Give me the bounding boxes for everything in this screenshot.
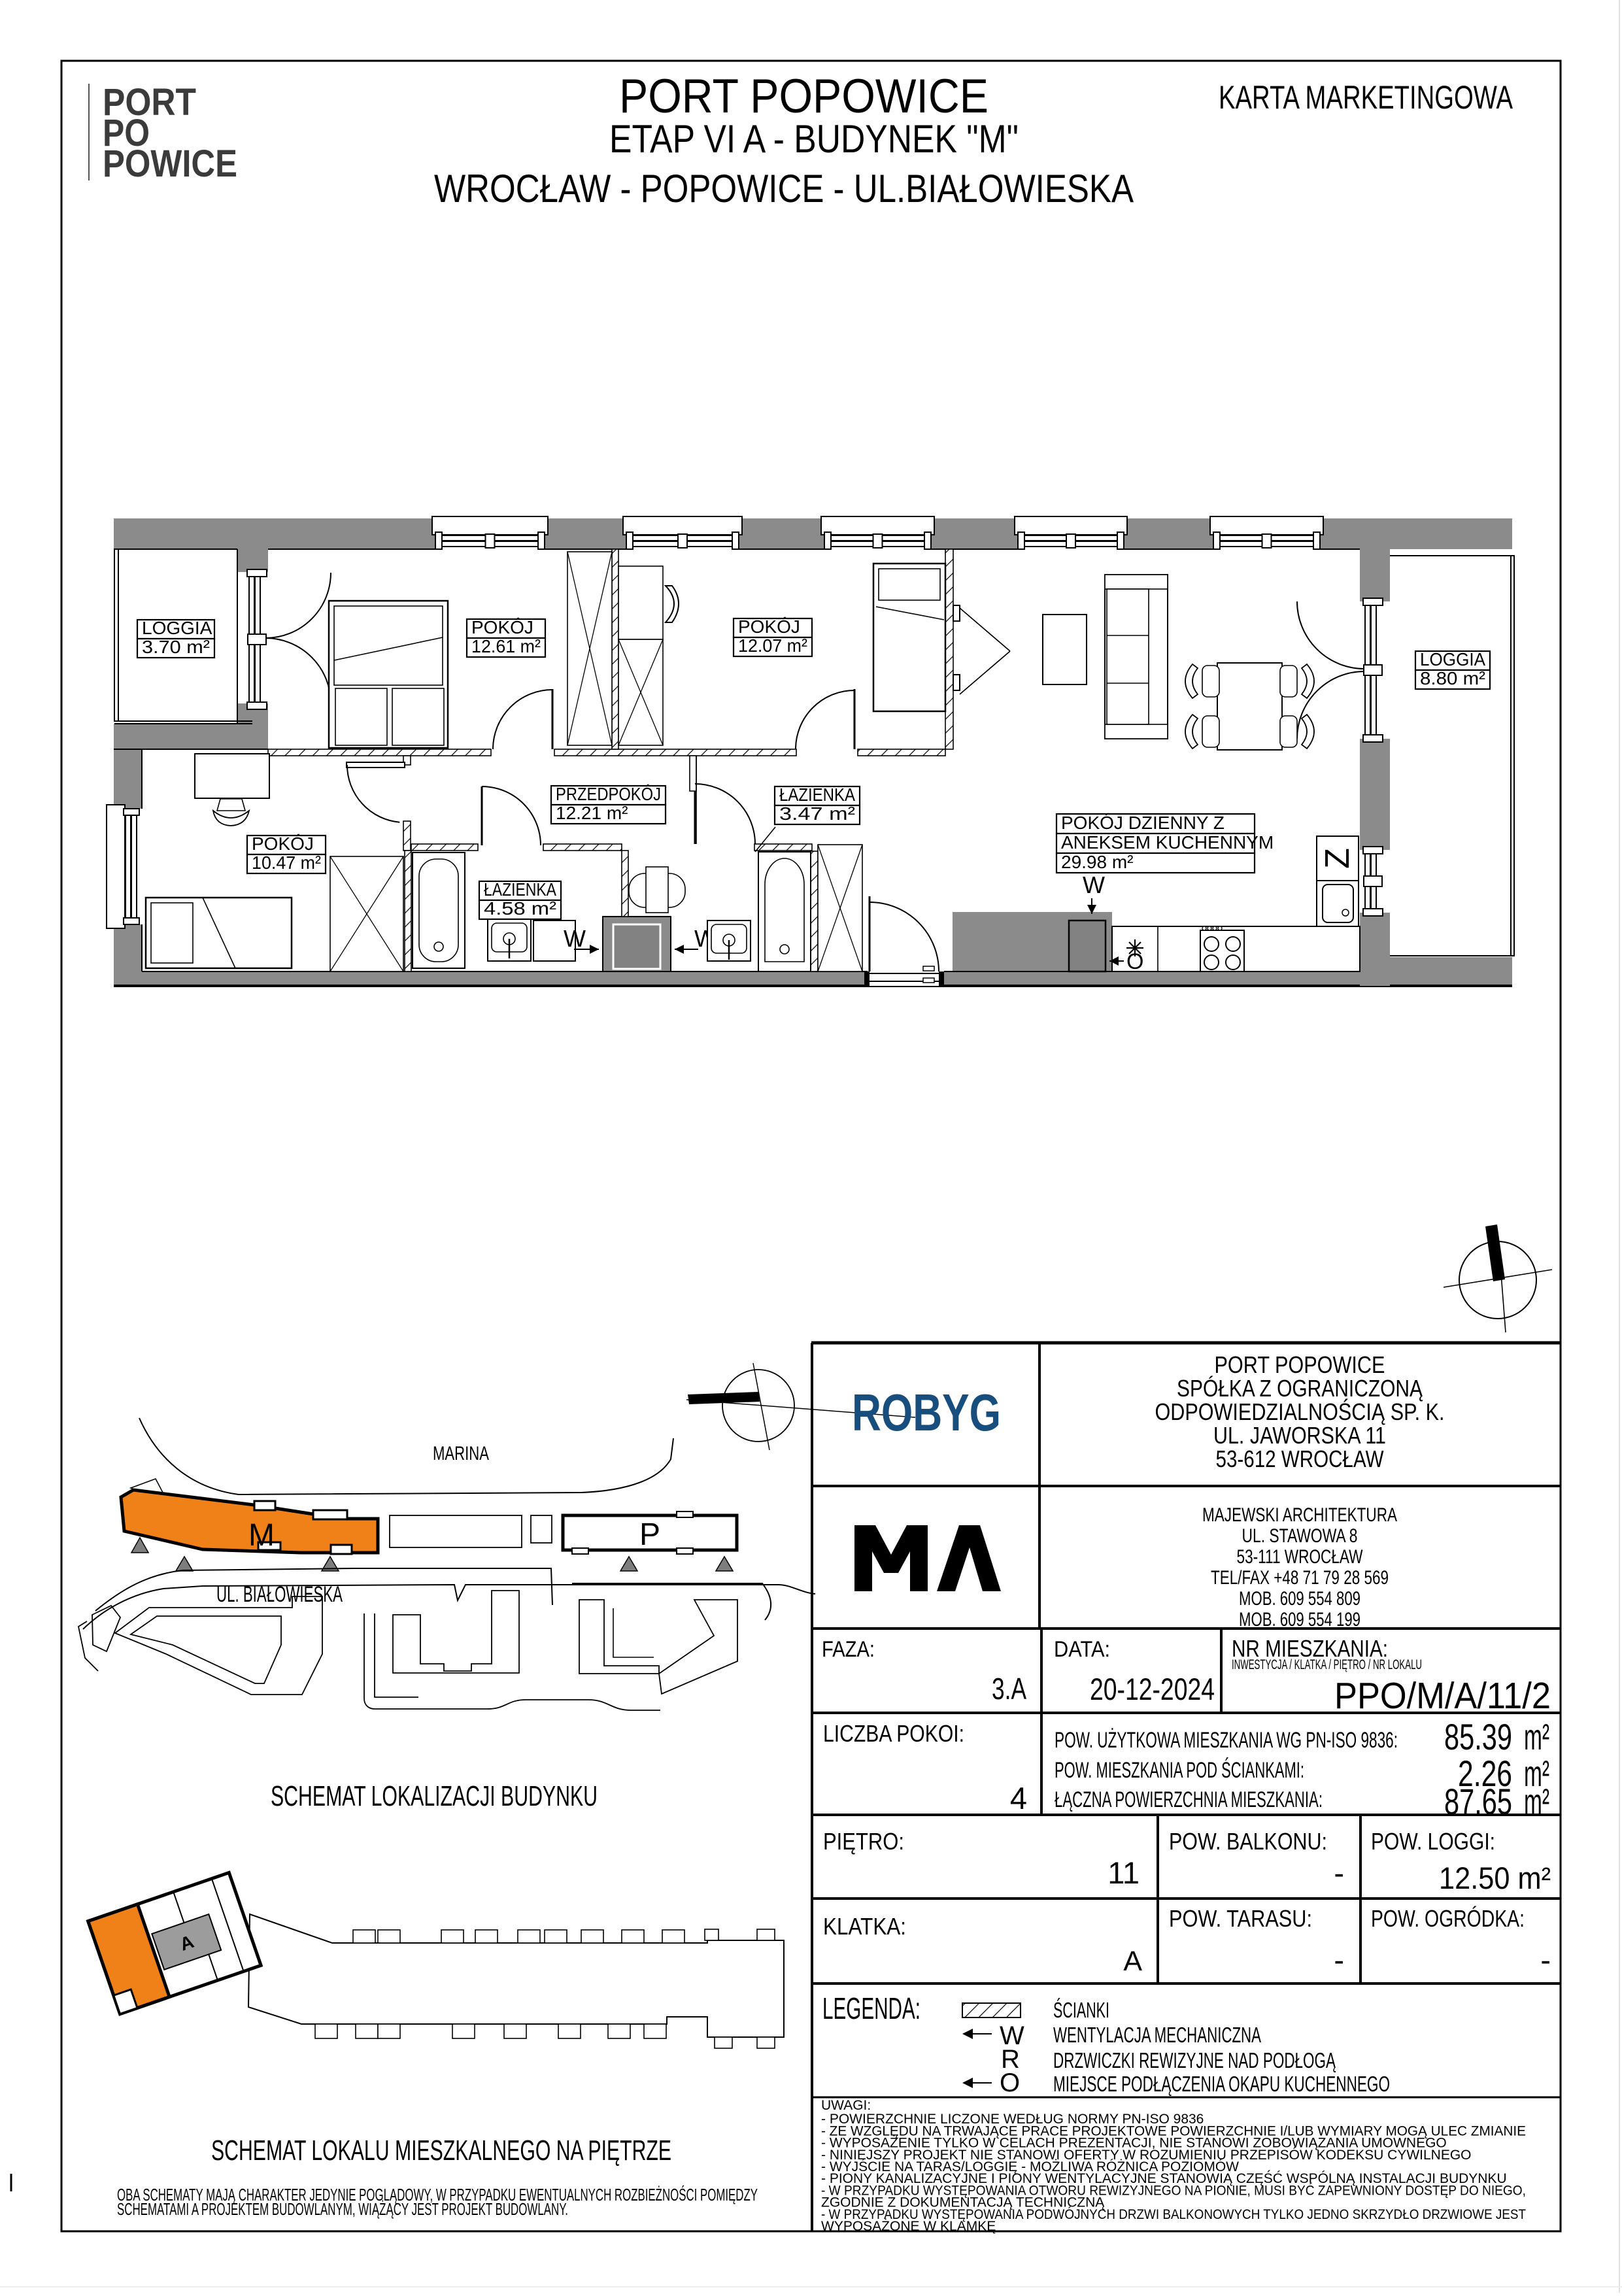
svg-text:ETAP VI A - BUDYNEK "M": ETAP VI A - BUDYNEK "M" xyxy=(609,117,1019,161)
svg-text:LICZBA POKOI:: LICZBA POKOI: xyxy=(823,1720,964,1747)
svg-text:MAJEWSKI ARCHITEKTURA: MAJEWSKI ARCHITEKTURA xyxy=(1202,1504,1397,1526)
svg-text:4: 4 xyxy=(1010,1781,1027,1815)
svg-text:POW. TARASU:: POW. TARASU: xyxy=(1169,1905,1312,1932)
svg-text:DATA:: DATA: xyxy=(1054,1637,1110,1662)
svg-text:12.50 m²: 12.50 m² xyxy=(1439,1861,1551,1895)
svg-text:PPO/M/A/11/2: PPO/M/A/11/2 xyxy=(1334,1675,1551,1717)
svg-text:20-12-2024: 20-12-2024 xyxy=(1090,1672,1215,1706)
svg-text:POKÓJ DZIENNY Z: POKÓJ DZIENNY Z xyxy=(1061,813,1225,833)
svg-text:LOGGIA: LOGGIA xyxy=(1420,649,1485,669)
svg-text:ŁAZIENKA: ŁAZIENKA xyxy=(779,785,855,805)
svg-text:POW. BALKONU:: POW. BALKONU: xyxy=(1169,1828,1327,1855)
svg-text:O: O xyxy=(1000,2068,1020,2097)
svg-text:PIĘTRO:: PIĘTRO: xyxy=(823,1828,904,1855)
svg-text:WROCŁAW - POPOWICE - UL.BIAŁOW: WROCŁAW - POPOWICE - UL.BIAŁOWIESKA xyxy=(434,167,1134,211)
svg-text:m²: m² xyxy=(1524,1781,1549,1822)
svg-text:-: - xyxy=(1334,1855,1344,1890)
svg-text:ANEKSEM KUCHENNYM: ANEKSEM KUCHENNYM xyxy=(1061,832,1274,853)
svg-text:UL. BIAŁOWIESKA: UL. BIAŁOWIESKA xyxy=(216,1582,343,1607)
svg-text:SPÓŁKA Z OGRANICZONĄ: SPÓŁKA Z OGRANICZONĄ xyxy=(1177,1375,1423,1402)
svg-text:3.70 m²: 3.70 m² xyxy=(142,637,210,657)
svg-text:3.A: 3.A xyxy=(992,1672,1026,1706)
svg-text:UL. STAWOWA 8: UL. STAWOWA 8 xyxy=(1242,1525,1358,1547)
svg-text:POW. LOGGI:: POW. LOGGI: xyxy=(1371,1828,1495,1855)
svg-text:29.98 m²: 29.98 m² xyxy=(1061,852,1134,872)
svg-text:SCHEMAT LOKALU MIESZKALNEGO NA: SCHEMAT LOKALU MIESZKALNEGO NA PIĘTRZE xyxy=(211,2135,671,2167)
svg-text:11: 11 xyxy=(1107,1855,1140,1890)
svg-text:UL. JAWORSKA 11: UL. JAWORSKA 11 xyxy=(1213,1422,1386,1449)
svg-text:WENTYLACJA MECHANICZNA: WENTYLACJA MECHANICZNA xyxy=(1053,2023,1261,2047)
svg-text:UWAGI:: UWAGI: xyxy=(821,2098,871,2113)
svg-text:-: - xyxy=(1540,1942,1551,1977)
svg-text:ROBYG: ROBYG xyxy=(852,1383,1001,1442)
svg-text:M: M xyxy=(248,1518,275,1553)
svg-text:POKÓJ: POKÓJ xyxy=(738,616,800,637)
svg-text:WYPOSAŻONE W KLAMKĘ: WYPOSAŻONE W KLAMKĘ xyxy=(821,2219,996,2234)
svg-text:12.21 m²: 12.21 m² xyxy=(556,803,628,823)
svg-text:53-612 WROCŁAW: 53-612 WROCŁAW xyxy=(1216,1445,1384,1472)
svg-text:10.47 m²: 10.47 m² xyxy=(252,853,321,873)
svg-text:PRZEDPOKÓJ: PRZEDPOKÓJ xyxy=(556,784,661,804)
svg-text:TEL/FAX +48 71 79 28 569: TEL/FAX +48 71 79 28 569 xyxy=(1211,1567,1389,1589)
svg-text:3.47 m²: 3.47 m² xyxy=(779,803,855,824)
svg-text:P: P xyxy=(639,1517,660,1552)
svg-text:DRZWICZKI REWIZYJNE NAD PODŁOG: DRZWICZKI REWIZYJNE NAD PODŁOGĄ xyxy=(1053,2048,1336,2072)
svg-text:MOB. 609 554 809: MOB. 609 554 809 xyxy=(1239,1588,1360,1610)
svg-text:4.58 m²: 4.58 m² xyxy=(484,898,556,919)
svg-text:85.39: 85.39 xyxy=(1444,1716,1512,1757)
svg-text:POKÓJ: POKÓJ xyxy=(252,834,314,854)
svg-text:MARINA: MARINA xyxy=(433,1443,489,1464)
svg-text:ŁĄCZNA POWIERZCHNIA MIESZKANIA: ŁĄCZNA POWIERZCHNIA MIESZKANIA: xyxy=(1055,1787,1323,1812)
svg-text:LEGENDA:: LEGENDA: xyxy=(822,1991,921,2025)
svg-text:POKÓJ: POKÓJ xyxy=(471,617,533,637)
svg-text:POWICE: POWICE xyxy=(103,143,237,185)
svg-text:ŚCIANKI: ŚCIANKI xyxy=(1053,1997,1109,2022)
svg-text:KARTA MARKETINGOWA: KARTA MARKETINGOWA xyxy=(1219,79,1513,116)
svg-text:INWESTYCJA / KLATKA / PIĘTRO /: INWESTYCJA / KLATKA / PIĘTRO / NR LOKALU xyxy=(1232,1657,1422,1672)
svg-text:POW. UŻYTKOWA MIESZKANIA WG PN: POW. UŻYTKOWA MIESZKANIA WG PN-ISO 9836: xyxy=(1055,1728,1398,1753)
svg-text:MIEJSCE PODŁĄCZENIA OKAPU KUCH: MIEJSCE PODŁĄCZENIA OKAPU KUCHENNEGO xyxy=(1053,2072,1390,2096)
svg-text:87.65: 87.65 xyxy=(1444,1781,1512,1822)
svg-text:ODPOWIEDZIALNOŚCIĄ SP. K.: ODPOWIEDZIALNOŚCIĄ SP. K. xyxy=(1155,1398,1445,1425)
svg-text:8.80 m²: 8.80 m² xyxy=(1420,668,1485,688)
svg-text:12.07 m²: 12.07 m² xyxy=(738,635,807,656)
svg-text:SCHEMAT LOKALIZACJI BUDYNKU: SCHEMAT LOKALIZACJI BUDYNKU xyxy=(271,1780,598,1812)
svg-text:FAZA:: FAZA: xyxy=(822,1637,875,1662)
svg-text:W: W xyxy=(564,925,586,952)
svg-text:m²: m² xyxy=(1524,1716,1549,1757)
svg-text:PORT POPOWICE: PORT POPOWICE xyxy=(1215,1351,1385,1378)
svg-text:W: W xyxy=(1083,871,1105,898)
svg-text:POW. MIESZKANIA POD ŚCIANKAMI:: POW. MIESZKANIA POD ŚCIANKAMI: xyxy=(1055,1757,1304,1783)
svg-text:-: - xyxy=(1334,1942,1344,1977)
svg-text:LOGGIA: LOGGIA xyxy=(142,618,212,638)
svg-text:PORT POPOWICE: PORT POPOWICE xyxy=(619,70,988,123)
svg-text:MOB. 609 554 199: MOB. 609 554 199 xyxy=(1239,1609,1360,1630)
svg-text:SCHEMATAMI A PROJEKTEM BUDOWLA: SCHEMATAMI A PROJEKTEM BUDOWLANYM, WIĄŻĄ… xyxy=(117,2199,568,2219)
svg-text:O: O xyxy=(1126,949,1143,974)
svg-text:53-111 WROCŁAW: 53-111 WROCŁAW xyxy=(1237,1546,1364,1568)
svg-text:A: A xyxy=(1123,1946,1142,1977)
svg-text:POW. OGRÓDKA:: POW. OGRÓDKA: xyxy=(1371,1905,1525,1932)
svg-text:Z: Z xyxy=(1319,848,1357,869)
svg-text:KLATKA:: KLATKA: xyxy=(823,1913,906,1940)
svg-text:12.61 m²: 12.61 m² xyxy=(471,636,541,656)
svg-text:ŁAZIENKA: ŁAZIENKA xyxy=(484,879,556,900)
